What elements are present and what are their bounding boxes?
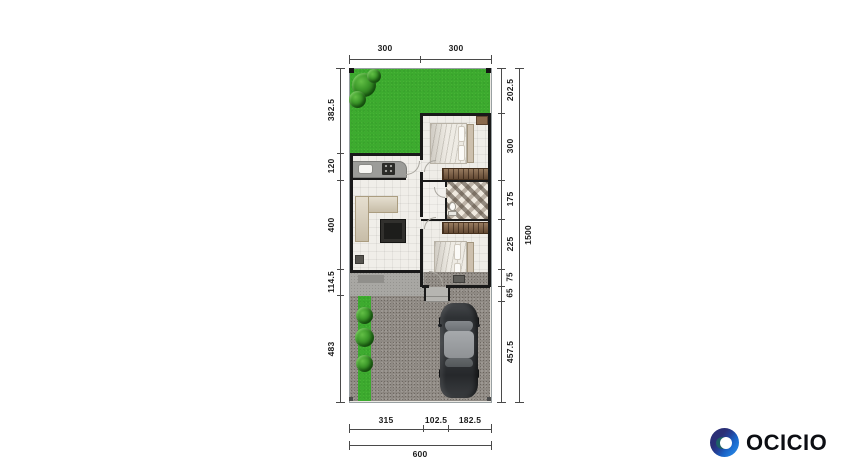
dim-label: 182.5 [459, 415, 481, 425]
plot-corner [349, 68, 354, 73]
wall [446, 285, 490, 288]
logo-swoosh-white [720, 437, 733, 450]
floor-mat [355, 255, 364, 264]
dim-label: 300 [378, 43, 393, 53]
dim-label: 1500 [523, 225, 533, 245]
kitchen-sink [358, 164, 373, 174]
dim-label: 300 [505, 139, 515, 154]
wall [448, 287, 450, 301]
car-roof [444, 331, 474, 358]
sofa-back [355, 196, 369, 242]
wall [420, 113, 490, 116]
dim-label: 483 [326, 342, 336, 357]
coffee-table-top [384, 223, 402, 239]
ac-unit [453, 275, 465, 283]
wall [421, 180, 490, 183]
wall [420, 229, 423, 287]
porch-step-line [425, 296, 449, 297]
dim-label: 400 [326, 218, 336, 233]
bed-1-headboard [467, 124, 474, 163]
porch [425, 287, 449, 302]
canvas: 300 300 382.5 120 400 114.5 483 202.5 30… [0, 0, 850, 469]
wall [488, 113, 491, 287]
dim-label: 300 [449, 43, 464, 53]
dim-label: 600 [413, 449, 428, 459]
dim-label: 382.5 [326, 99, 336, 121]
bed-1-pillow [458, 126, 465, 142]
wall [350, 270, 422, 273]
floor-plan [349, 68, 492, 403]
dim-label: 65 [506, 288, 515, 297]
wall [445, 198, 448, 220]
dim-label: 114.5 [326, 271, 336, 293]
wall [350, 153, 353, 272]
ocicio-ring-icon [710, 428, 739, 457]
car-rear-window [445, 358, 473, 367]
car-mirror [476, 324, 480, 327]
wall [445, 180, 448, 187]
plot-corner [349, 397, 353, 401]
logo-text: OCICIO [746, 428, 827, 457]
toilet-bowl [449, 202, 456, 211]
bed-2-pillow [454, 244, 461, 260]
dim-label: 75 [506, 272, 515, 281]
dim-label: 202.5 [505, 79, 515, 101]
dim-label: 120 [326, 159, 336, 174]
bush [356, 355, 373, 372]
backyard-grass-left [350, 113, 420, 153]
wardrobe-1 [442, 168, 490, 180]
nightstand-1 [476, 116, 488, 125]
wardrobe-2 [442, 222, 490, 234]
plot-corner [487, 397, 491, 401]
wall [350, 153, 422, 156]
dim-label: 102.5 [425, 415, 447, 425]
bush [349, 91, 366, 108]
toilet-tank [448, 211, 457, 216]
wall [350, 178, 406, 180]
bush [367, 69, 381, 83]
wall [424, 287, 426, 301]
dim-label: 457.5 [505, 341, 515, 363]
car [440, 303, 478, 398]
bush [355, 328, 374, 347]
plot-corner [486, 68, 491, 73]
dim-label: 225 [505, 237, 515, 252]
terrace-step [358, 275, 384, 283]
bed-1-pillow [458, 145, 465, 161]
bush [356, 307, 373, 324]
dim-label: 315 [379, 415, 394, 425]
dim-label: 175 [505, 192, 515, 207]
kitchen-stove [382, 163, 395, 175]
car-mirror [438, 324, 442, 327]
